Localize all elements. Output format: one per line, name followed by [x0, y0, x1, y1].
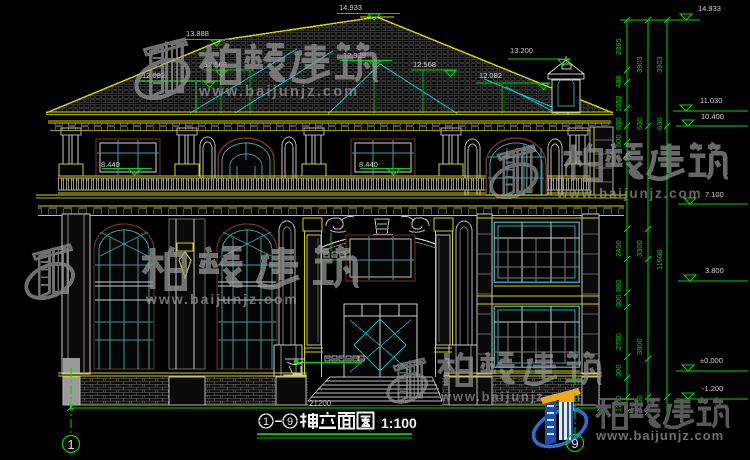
svg-text:www.baijunjz.com: www.baijunjz.com [145, 291, 299, 307]
svg-text:www.baijunjz.com: www.baijunjz.com [556, 186, 702, 201]
svg-text:3.800: 3.800 [705, 266, 724, 275]
svg-text:13.888: 13.888 [186, 29, 209, 38]
svg-text:3800: 3800 [635, 338, 644, 355]
svg-text:630: 630 [614, 117, 623, 130]
svg-text:1:100: 1:100 [381, 415, 417, 431]
svg-text:1: 1 [67, 437, 74, 452]
svg-text:3903: 3903 [655, 56, 664, 73]
svg-text:www.baijunjz.com: www.baijunjz.com [198, 84, 359, 100]
svg-text:8.440: 8.440 [101, 160, 120, 169]
svg-text:10.400: 10.400 [701, 112, 724, 121]
svg-text:7.100: 7.100 [705, 190, 724, 199]
svg-text:1: 1 [263, 416, 269, 428]
svg-text:486: 486 [614, 75, 623, 88]
svg-text:1052: 1052 [614, 95, 623, 112]
svg-text:14.933: 14.933 [698, 4, 721, 13]
svg-text:13.200: 13.200 [510, 46, 533, 55]
svg-text:14.933: 14.933 [339, 3, 362, 12]
svg-text:3300: 3300 [635, 240, 644, 257]
svg-text:9: 9 [571, 436, 578, 451]
svg-text:300: 300 [614, 294, 623, 307]
svg-text:630: 630 [655, 117, 664, 130]
svg-text:8.440: 8.440 [359, 160, 378, 169]
svg-text:www.baijunjz.com: www.baijunjz.com [595, 428, 724, 443]
svg-text:12.082: 12.082 [479, 71, 502, 80]
svg-text:-1.200: -1.200 [702, 384, 723, 393]
svg-text:300: 300 [614, 364, 623, 377]
svg-text:9: 9 [287, 416, 293, 428]
svg-text:±0.000: ±0.000 [700, 356, 723, 365]
svg-text:3903: 3903 [635, 56, 644, 73]
svg-text:2700: 2700 [614, 333, 623, 350]
svg-text:2400: 2400 [614, 240, 623, 257]
svg-text:11600: 11600 [655, 250, 664, 270]
svg-text:630: 630 [635, 117, 644, 130]
svg-text:11.030: 11.030 [700, 96, 722, 105]
svg-text:12.568: 12.568 [413, 60, 436, 69]
svg-text:800: 800 [614, 279, 623, 292]
svg-text:21200: 21200 [309, 399, 332, 408]
svg-text:2365: 2365 [614, 38, 623, 55]
